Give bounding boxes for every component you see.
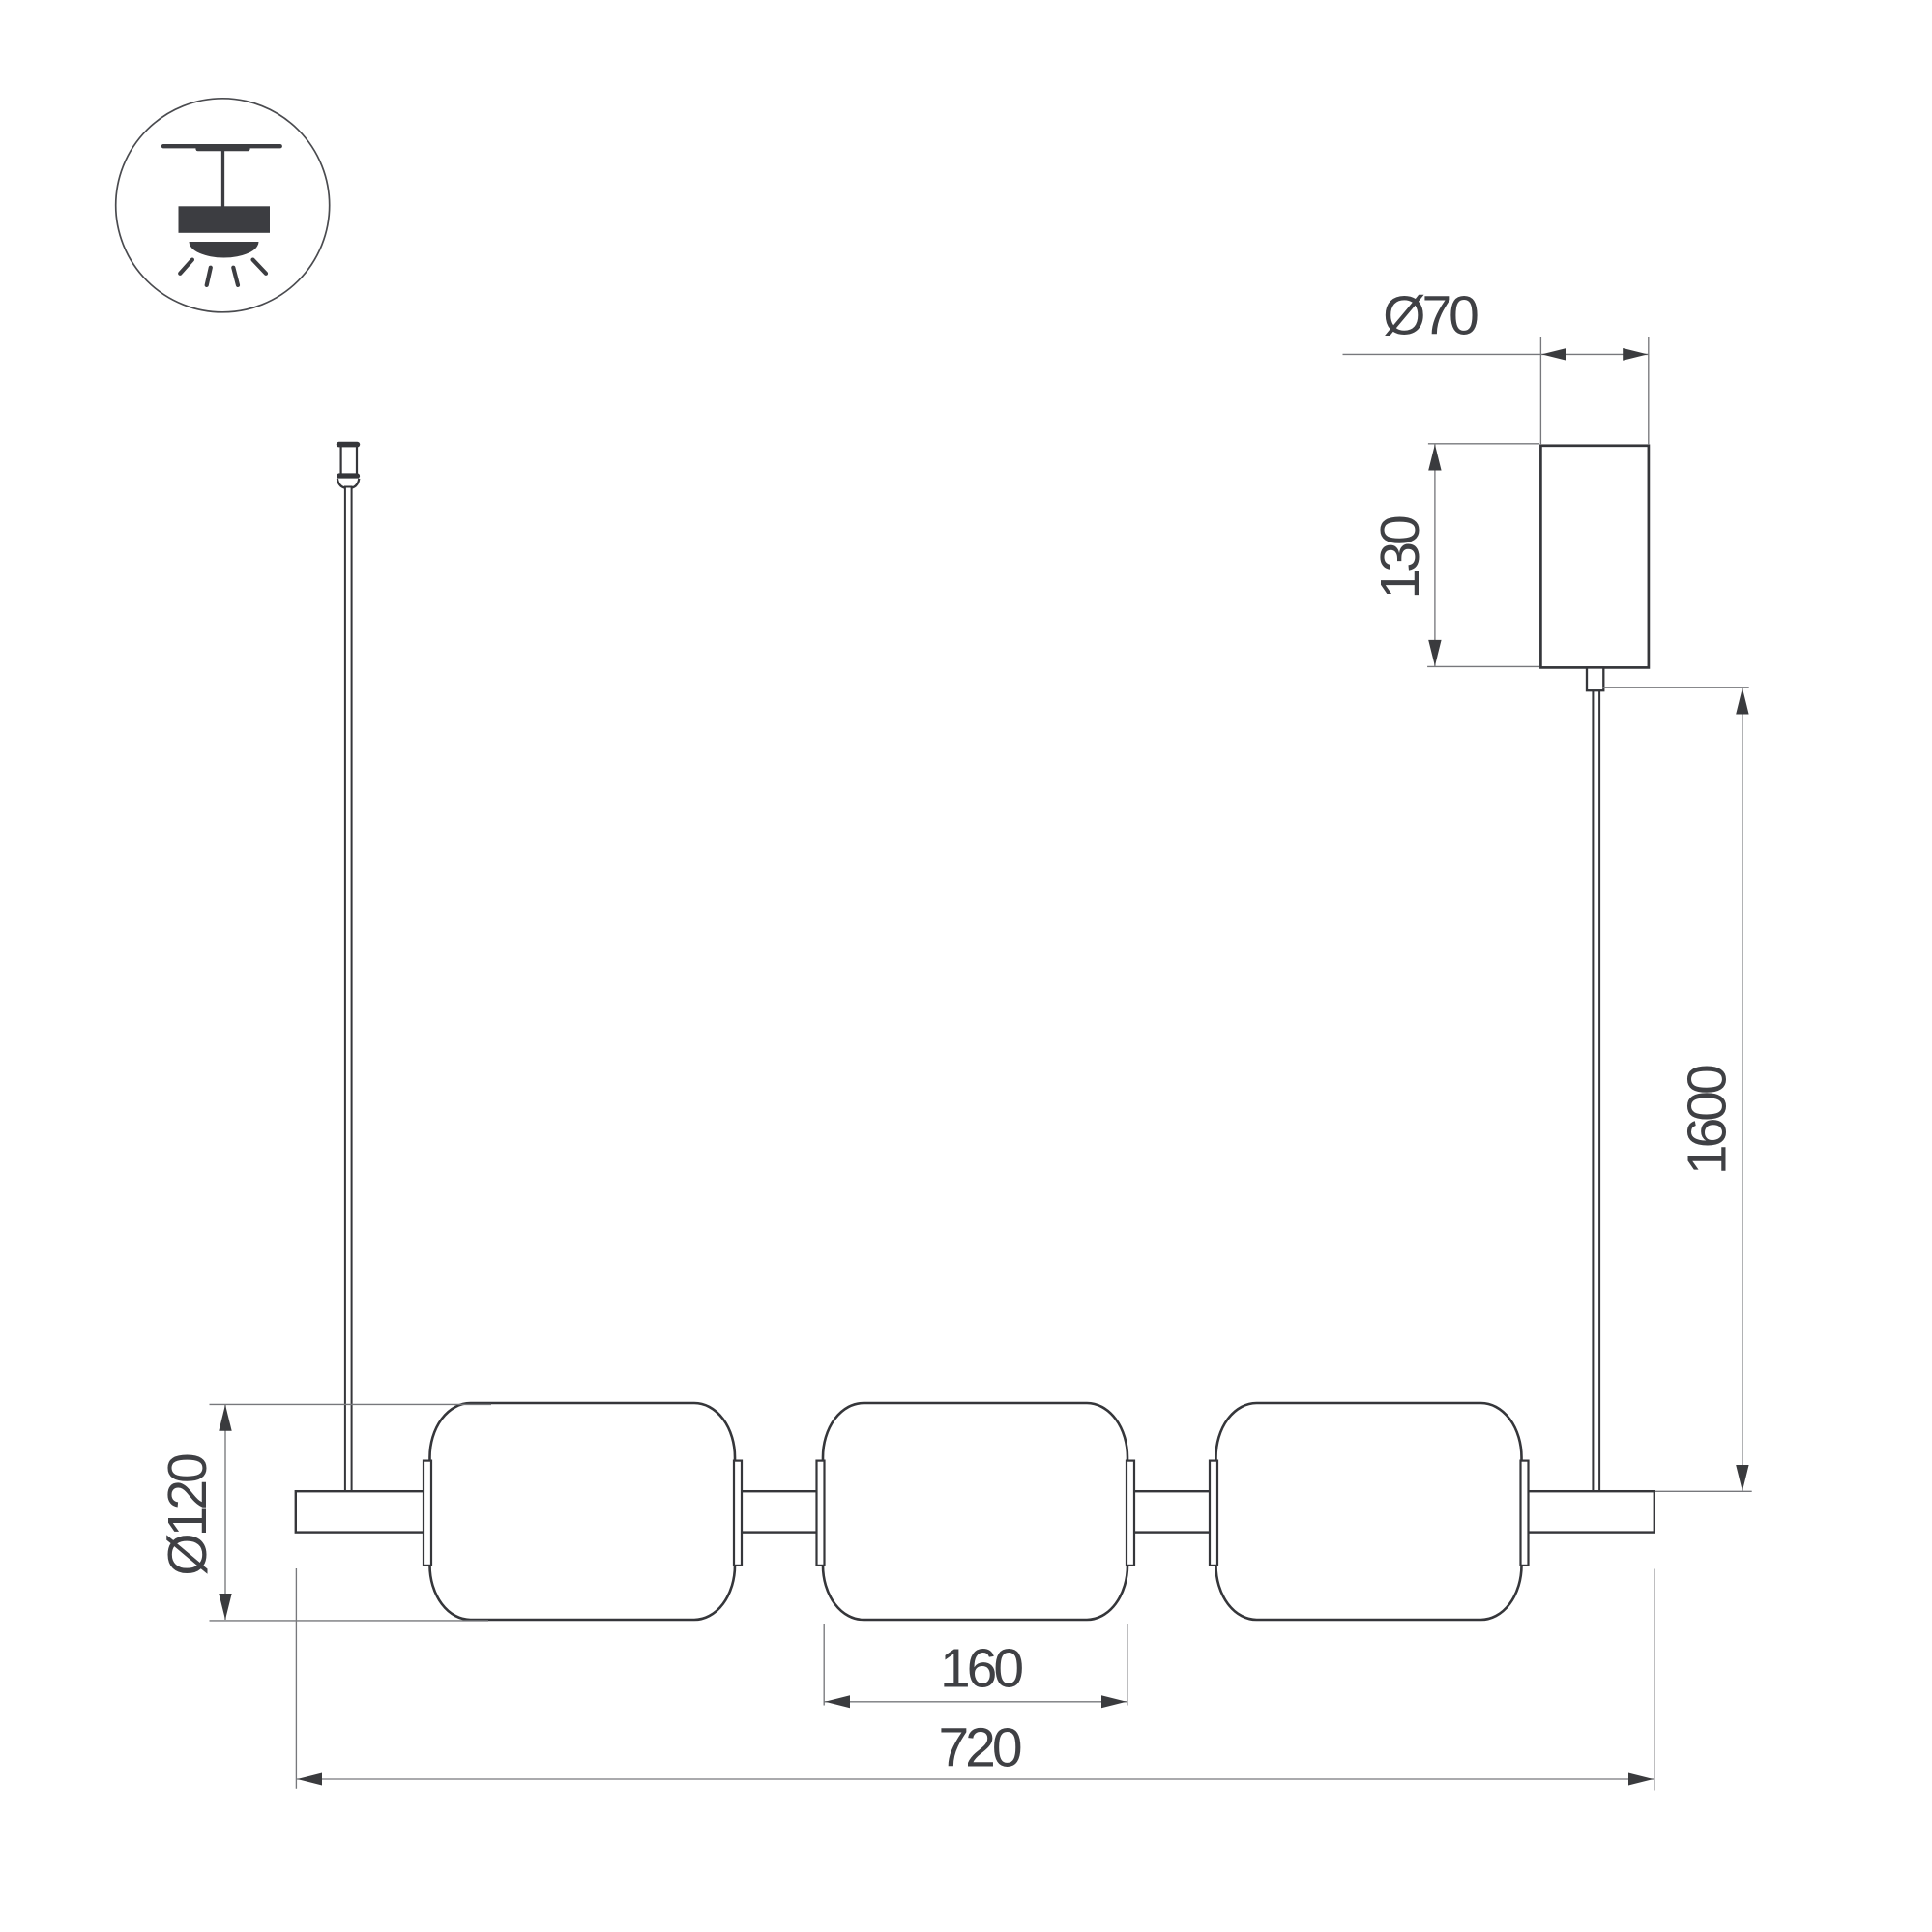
svg-text:1600: 1600 xyxy=(1677,1066,1739,1175)
svg-text:Ø70: Ø70 xyxy=(1383,285,1478,347)
svg-text:720: 720 xyxy=(938,1716,1020,1778)
svg-text:Ø120: Ø120 xyxy=(157,1454,219,1576)
svg-text:130: 130 xyxy=(1369,516,1431,599)
svg-text:160: 160 xyxy=(940,1638,1022,1700)
